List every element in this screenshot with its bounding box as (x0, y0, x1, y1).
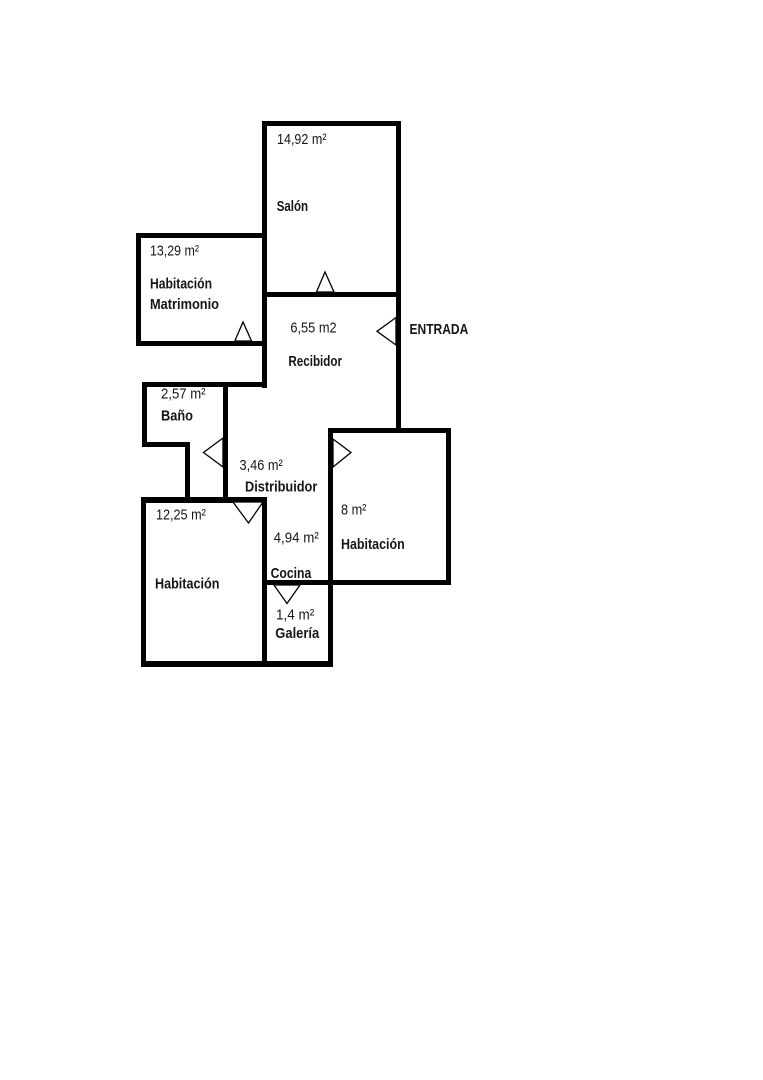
svg-text:3,46 m²: 3,46 m² (240, 457, 283, 474)
svg-text:8 m²: 8 m² (341, 501, 366, 518)
svg-text:Distribuidor: Distribuidor (245, 478, 317, 495)
svg-text:12,25 m²: 12,25 m² (156, 506, 206, 523)
svg-text:Galería: Galería (275, 625, 319, 642)
svg-text:14,92 m²: 14,92 m² (277, 131, 327, 148)
svg-text:Salón: Salón (277, 198, 308, 215)
svg-text:Habitación: Habitación (341, 536, 405, 553)
svg-text:2,57 m²: 2,57 m² (161, 385, 206, 402)
svg-text:13,29 m²: 13,29 m² (150, 242, 199, 259)
svg-text:Recibidor: Recibidor (288, 353, 342, 370)
svg-text:Baño: Baño (161, 407, 193, 424)
svg-text:Cocina: Cocina (271, 565, 312, 582)
svg-text:ENTRADA: ENTRADA (410, 321, 469, 338)
svg-text:Matrimonio: Matrimonio (150, 296, 219, 313)
svg-text:4,94 m²: 4,94 m² (274, 529, 319, 546)
svg-text:Habitación: Habitación (150, 276, 212, 293)
svg-text:6,55 m2: 6,55 m2 (290, 320, 336, 337)
svg-text:1,4 m²: 1,4 m² (276, 606, 314, 623)
svg-text:Habitación: Habitación (155, 575, 219, 592)
